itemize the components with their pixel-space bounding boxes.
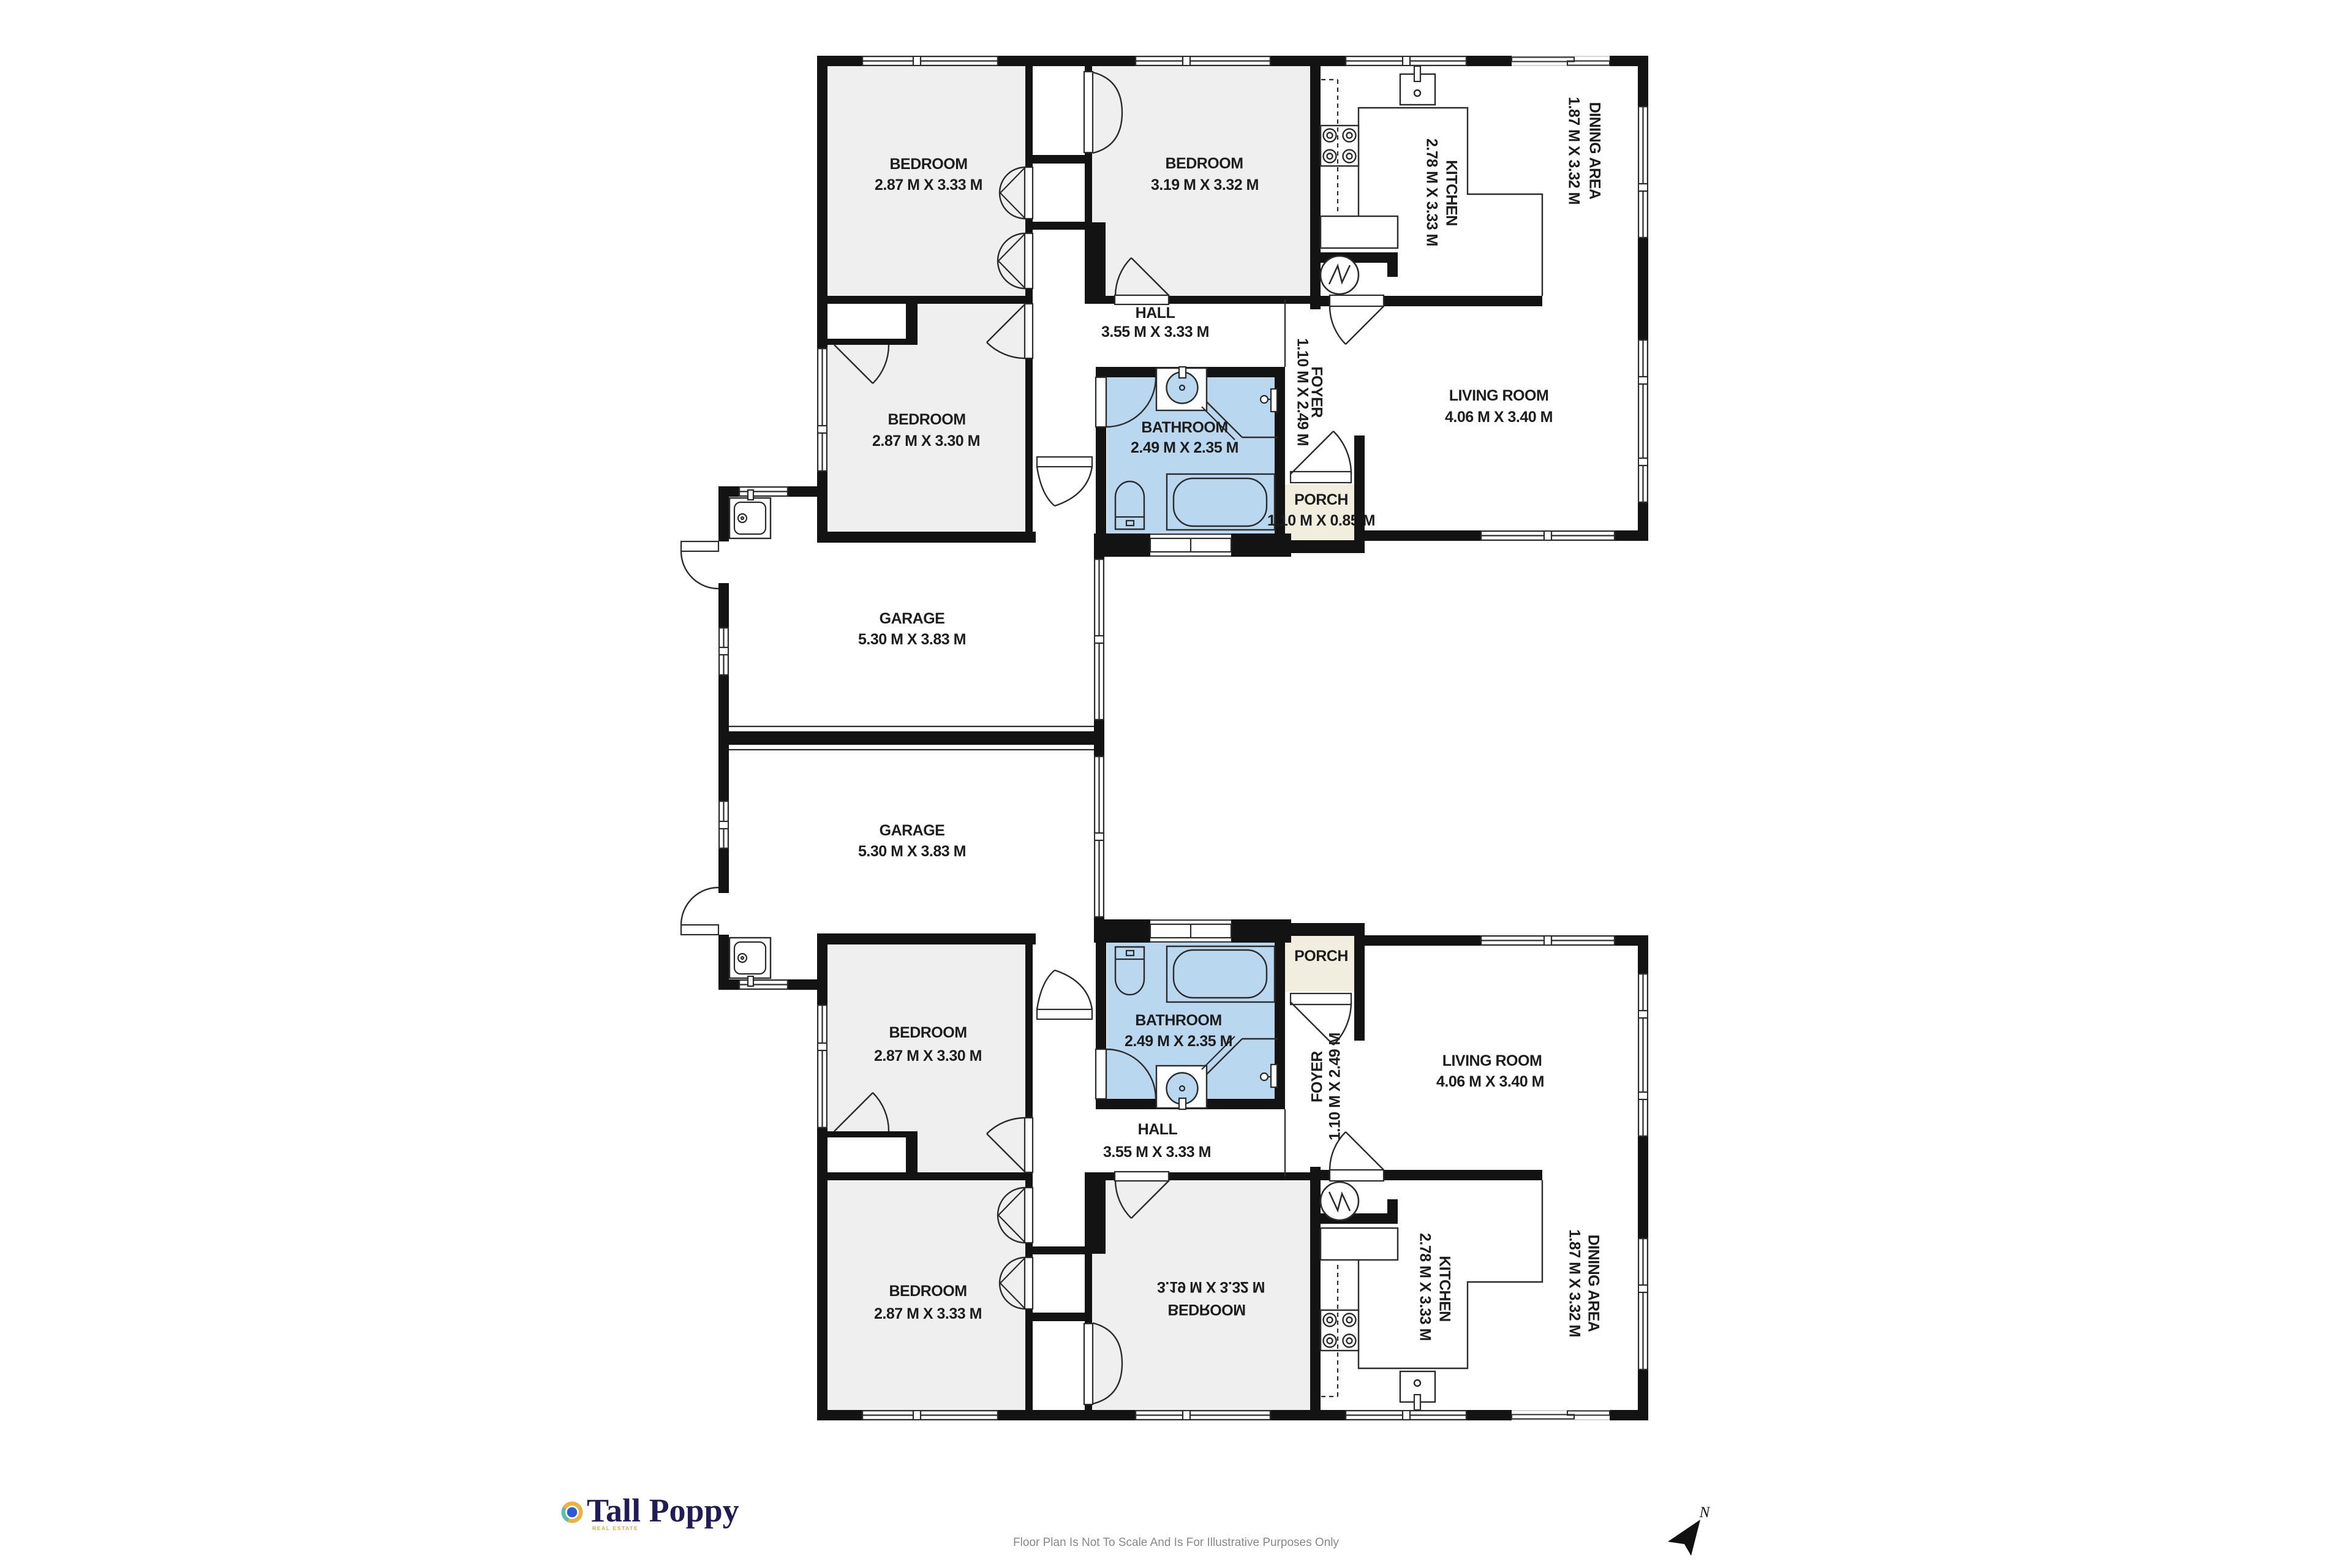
svg-text:LIVING ROOM: LIVING ROOM bbox=[1442, 1052, 1542, 1069]
svg-text:2.87 M X 3.30 M: 2.87 M X 3.30 M bbox=[872, 432, 980, 450]
svg-text:Tall Poppy: Tall Poppy bbox=[587, 1492, 739, 1529]
svg-text:HALL: HALL bbox=[1136, 304, 1175, 322]
svg-text:BEDROOM: BEDROOM bbox=[889, 1024, 967, 1041]
svg-text:BEDROOM: BEDROOM bbox=[889, 1283, 967, 1300]
svg-text:REAL ESTATE: REAL ESTATE bbox=[592, 1525, 638, 1531]
svg-text:BATHROOM: BATHROOM bbox=[1135, 1012, 1221, 1029]
svg-text:2.78 M X 3.33 M: 2.78 M X 3.33 M bbox=[1417, 1233, 1434, 1341]
svg-text:2.87 M X 3.33 M: 2.87 M X 3.33 M bbox=[875, 176, 982, 194]
svg-text:KITCHEN: KITCHEN bbox=[1436, 1256, 1453, 1322]
svg-text:1.10 M X 2.49 M: 1.10 M X 2.49 M bbox=[1327, 1033, 1344, 1140]
svg-text:3.19 M X 3.32 M: 3.19 M X 3.32 M bbox=[1151, 176, 1259, 194]
svg-text:1.10 M X 2.49 M: 1.10 M X 2.49 M bbox=[1294, 338, 1311, 446]
svg-text:3.19 M X 3.32 M: 3.19 M X 3.32 M bbox=[1157, 1278, 1265, 1295]
svg-text:2.49 M X 2.35 M: 2.49 M X 2.35 M bbox=[1131, 439, 1238, 456]
svg-text:HALL: HALL bbox=[1138, 1121, 1178, 1138]
svg-text:FOYER: FOYER bbox=[1309, 1051, 1326, 1102]
svg-text:BEDROOM: BEDROOM bbox=[1165, 155, 1243, 172]
svg-text:3.55 M X 3.33 M: 3.55 M X 3.33 M bbox=[1101, 323, 1209, 341]
svg-text:PORCH: PORCH bbox=[1294, 948, 1348, 965]
svg-text:4.06 M X 3.40 M: 4.06 M X 3.40 M bbox=[1436, 1073, 1544, 1090]
svg-text:3.55 M X 3.33 M: 3.55 M X 3.33 M bbox=[1103, 1144, 1211, 1161]
svg-text:BATHROOM: BATHROOM bbox=[1141, 419, 1227, 436]
svg-text:Floor Plan Is Not To Scale And: Floor Plan Is Not To Scale And Is For Il… bbox=[1013, 1536, 1339, 1549]
svg-text:5.30 M X 3.83 M: 5.30 M X 3.83 M bbox=[858, 631, 966, 648]
svg-text:GARAGE: GARAGE bbox=[880, 610, 945, 627]
svg-text:KITCHEN: KITCHEN bbox=[1443, 160, 1460, 226]
svg-text:1.87 M X 3.32 M: 1.87 M X 3.32 M bbox=[1566, 1229, 1583, 1337]
svg-text:DINING AREA: DINING AREA bbox=[1585, 1235, 1602, 1332]
svg-text:DINING AREA: DINING AREA bbox=[1586, 102, 1604, 200]
svg-text:N: N bbox=[1699, 1504, 1711, 1521]
svg-text:5.30 M X 3.83 M: 5.30 M X 3.83 M bbox=[858, 843, 966, 860]
svg-text:BEDROOM: BEDROOM bbox=[1167, 1301, 1245, 1318]
svg-text:1.87 M X 3.32 M: 1.87 M X 3.32 M bbox=[1566, 97, 1583, 205]
svg-text:BEDROOM: BEDROOM bbox=[889, 156, 967, 173]
svg-text:PORCH: PORCH bbox=[1294, 491, 1348, 508]
svg-text:BEDROOM: BEDROOM bbox=[888, 411, 965, 428]
svg-text:2.87 M X 3.33 M: 2.87 M X 3.33 M bbox=[874, 1305, 982, 1322]
svg-text:LIVING ROOM: LIVING ROOM bbox=[1449, 387, 1549, 404]
svg-text:4.06 M X 3.40 M: 4.06 M X 3.40 M bbox=[1445, 409, 1553, 426]
svg-text:2.49 M X 2.35 M: 2.49 M X 2.35 M bbox=[1125, 1033, 1232, 1050]
svg-text:GARAGE: GARAGE bbox=[880, 822, 945, 839]
svg-text:2.78 M X 3.33 M: 2.78 M X 3.33 M bbox=[1423, 138, 1441, 246]
svg-text:2.87 M X 3.30 M: 2.87 M X 3.30 M bbox=[874, 1047, 982, 1065]
